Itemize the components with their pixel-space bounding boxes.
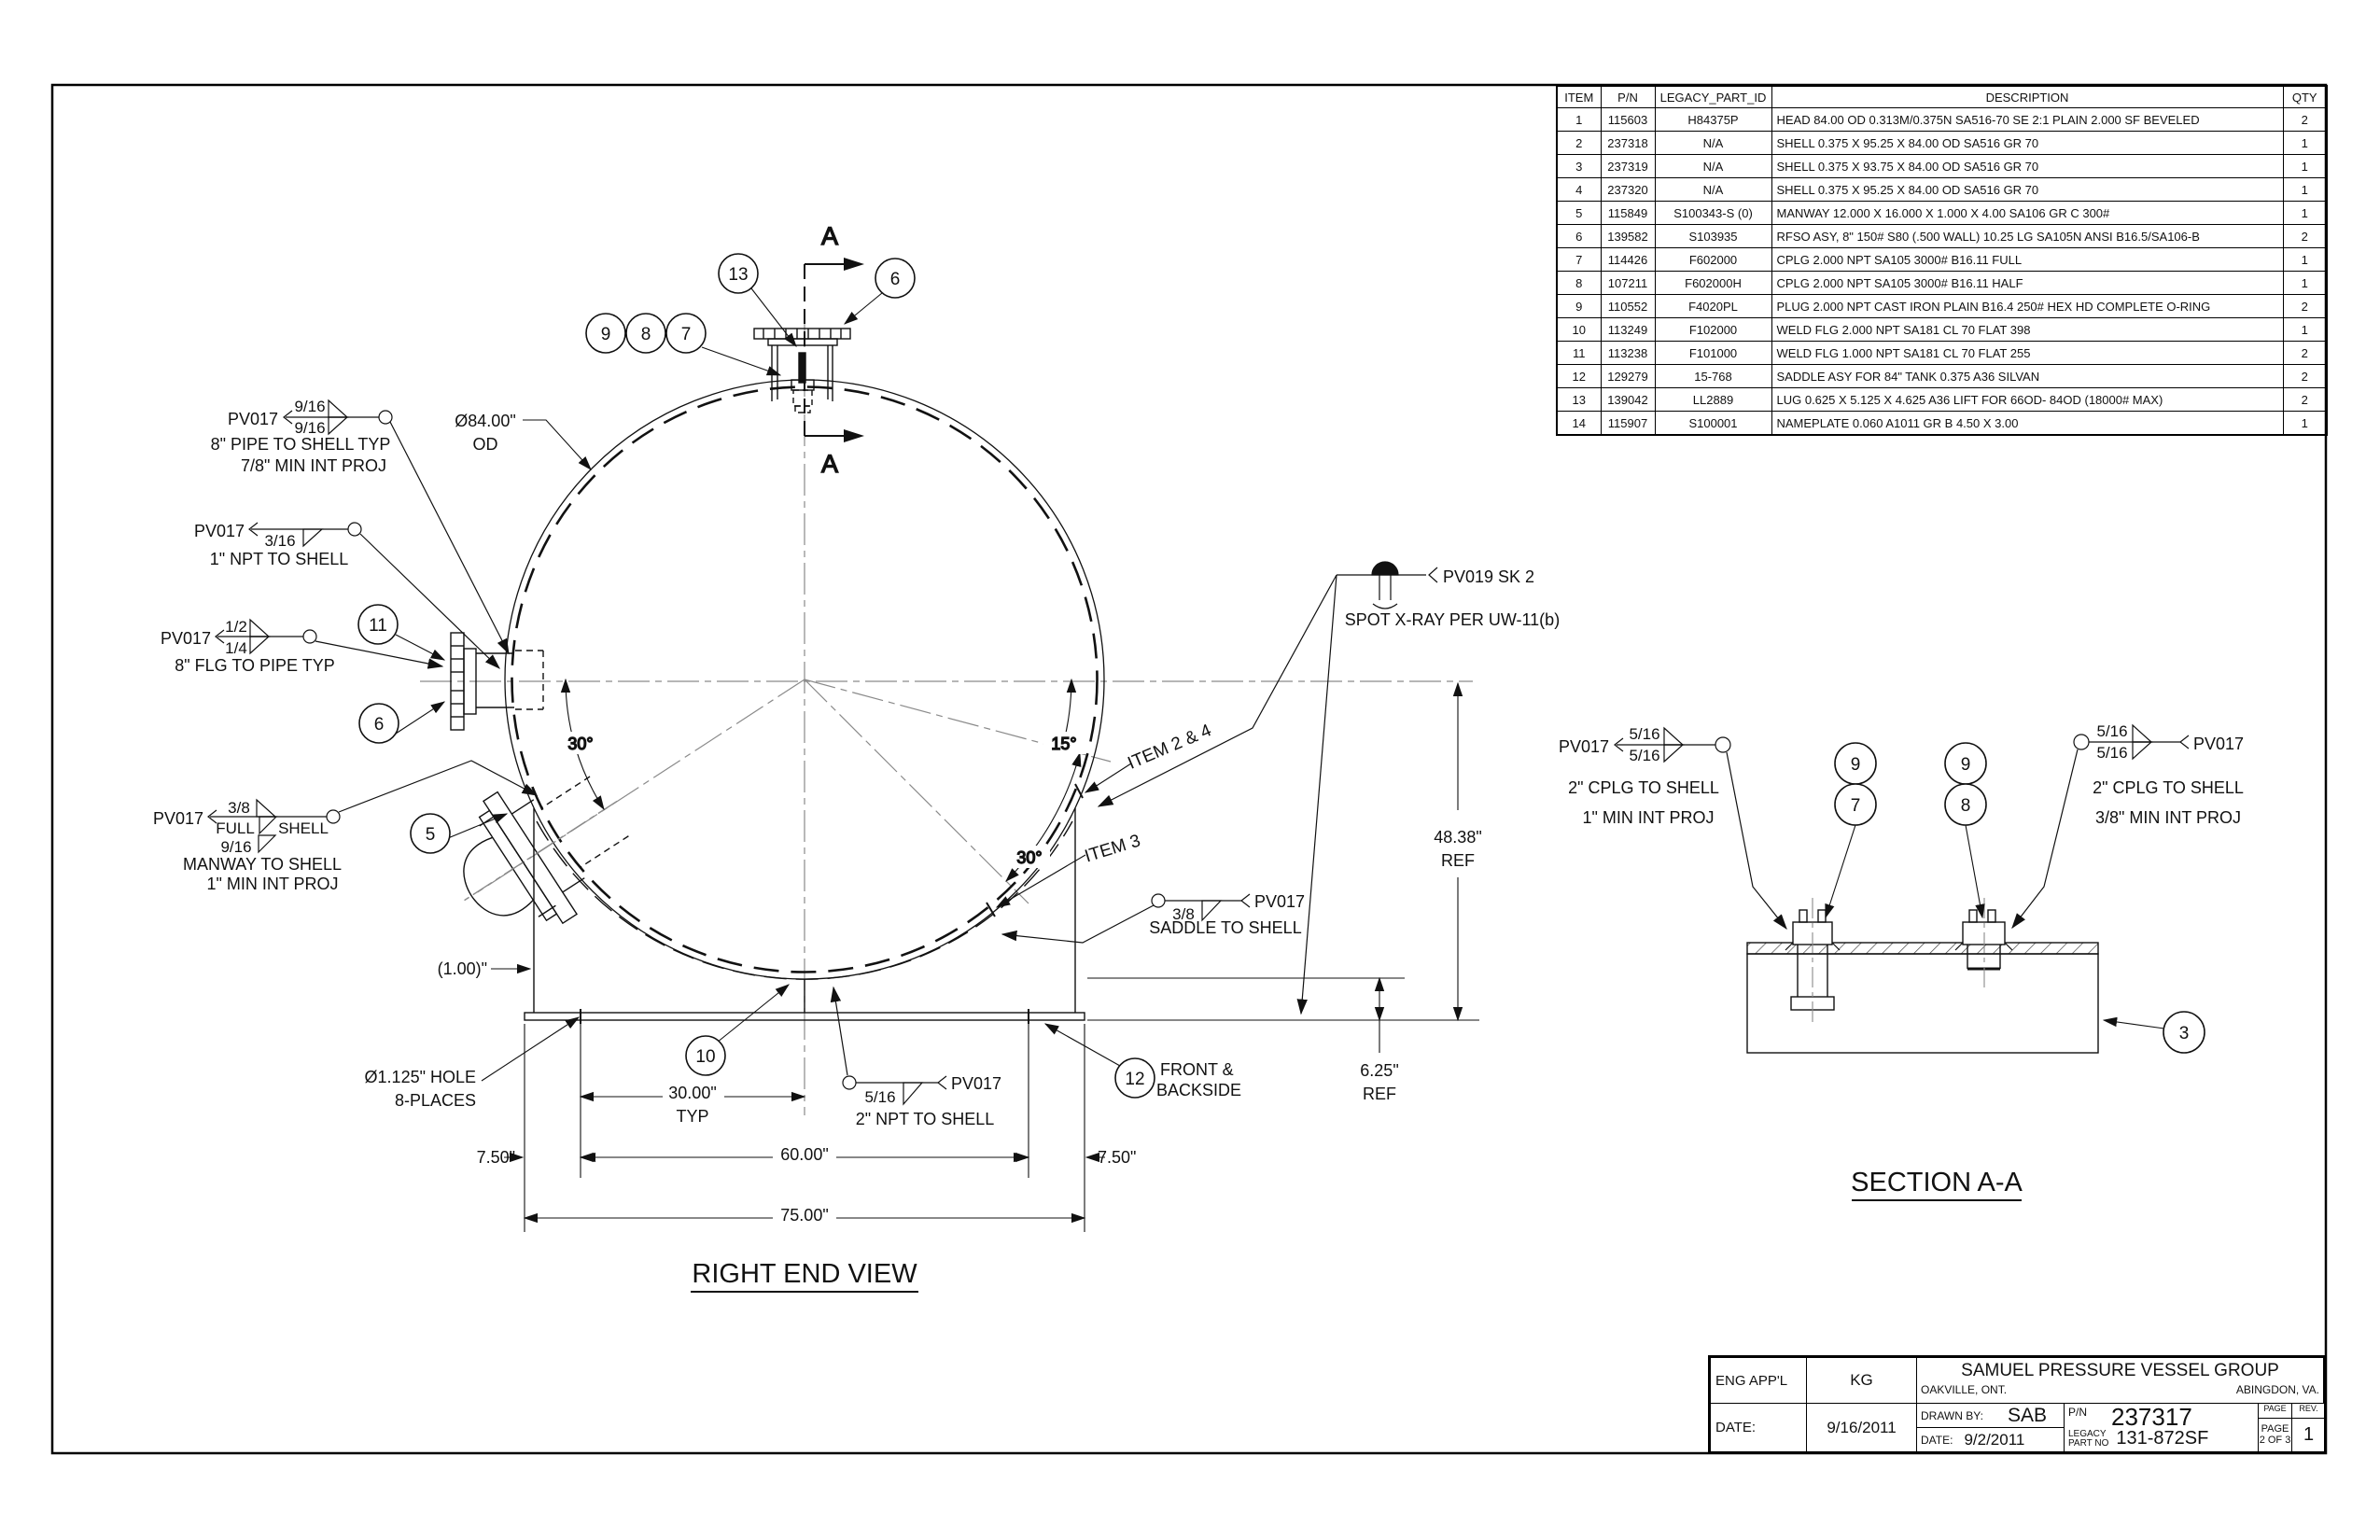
section-letter-bottom: A <box>821 450 838 478</box>
bom-row: 9110552F4020PLPLUG 2.000 NPT CAST IRON P… <box>1557 295 2327 318</box>
angle-dims <box>566 679 1080 881</box>
bom-cell: S103935 <box>1655 225 1771 248</box>
bom-cell: F4020PL <box>1655 295 1771 318</box>
bom-cell: 1 <box>2283 272 2327 295</box>
dim-60: 60.00" <box>780 1145 828 1164</box>
bom-cell: 5 <box>1557 202 1601 225</box>
bom-cell: MANWAY 12.000 X 16.000 X 1.000 X 4.00 SA… <box>1771 202 2283 225</box>
weld-pipe-shell-note-2: 7/8" MIN INT PROJ <box>241 456 386 475</box>
weld-cplg-left-size-top: 5/16 <box>1629 725 1659 743</box>
balloon-9-section-right: 9 <box>1961 755 1971 775</box>
drawn-date-label: DATE: <box>1921 1434 1953 1447</box>
bom-cell: 1 <box>1557 108 1601 132</box>
page-header: PAGE <box>2258 1403 2292 1419</box>
drawing-sheet: A A <box>0 0 2380 1540</box>
bom-cell: WELD FLG 1.000 NPT SA181 CL 70 FLAT 255 <box>1771 342 2283 365</box>
bom-cell: F102000 <box>1655 318 1771 342</box>
balloon-5: 5 <box>426 825 436 845</box>
bom-cell: 115849 <box>1601 202 1655 225</box>
weld-cplg-left-size-bot: 5/16 <box>1629 747 1659 764</box>
bom-cell: 139042 <box>1601 388 1655 412</box>
bom-cell: S100001 <box>1655 412 1771 436</box>
dim-625-ref: REF <box>1363 1085 1396 1103</box>
bom-cell: CPLG 2.000 NPT SA105 3000# B16.11 HALF <box>1771 272 2283 295</box>
bom-cell: 113249 <box>1601 318 1655 342</box>
bom-header-qty: QTY <box>2283 86 2327 108</box>
bom-row: 14115907S100001NAMEPLATE 0.060 A1011 GR … <box>1557 412 2327 436</box>
bom-cell: 10 <box>1557 318 1601 342</box>
bom-row: 11113238F101000WELD FLG 1.000 NPT SA181 … <box>1557 342 2327 365</box>
bom-cell: 1 <box>2283 178 2327 202</box>
bottom-dimensions <box>504 683 1458 1232</box>
bom-cell: 1 <box>2283 412 2327 436</box>
bom-cell: 2 <box>2283 108 2327 132</box>
bom-cell: SHELL 0.375 X 93.75 X 84.00 OD SA516 GR … <box>1771 155 2283 178</box>
bom-row: 1115603H84375PHEAD 84.00 OD 0.313M/0.375… <box>1557 108 2327 132</box>
weld-flg-pipe-tag: PV017 <box>161 629 211 648</box>
hole-label-2: 8-PLACES <box>395 1091 476 1110</box>
item-2-4-label: ITEM 2 & 4 <box>1125 721 1214 774</box>
bom-cell: 114426 <box>1601 248 1655 272</box>
legacy-label: LEGACYPART NO <box>2068 1430 2108 1449</box>
drawn-date-cell: DATE: 9/2/2011 <box>1916 1427 2065 1452</box>
weld-manway-shell: SHELL <box>278 819 329 837</box>
weld-npt2-note: 2" NPT TO SHELL <box>856 1110 994 1128</box>
weld-npt1-size: 3/16 <box>264 532 295 550</box>
bom-cell: SHELL 0.375 X 95.25 X 84.00 OD SA516 GR … <box>1771 178 2283 202</box>
weld-flg-pipe-note: 8" FLG TO PIPE TYP <box>175 656 334 675</box>
item-labels: ITEM 2 & 4 ITEM 3 <box>997 721 1214 907</box>
balloon-8: 8 <box>641 325 651 344</box>
weld-saddle-tag: PV017 <box>1254 892 1305 911</box>
bom-cell: 4 <box>1557 178 1601 202</box>
bom-cell: CPLG 2.000 NPT SA105 3000# B16.11 FULL <box>1771 248 2283 272</box>
bom-header-row: ITEM P/N LEGACY_PART_ID DESCRIPTION QTY <box>1557 86 2327 108</box>
dim-625: 6.25" <box>1360 1061 1398 1080</box>
weld-cplg-right-tag: PV017 <box>2193 735 2244 753</box>
bom-cell: 2 <box>2283 295 2327 318</box>
section-coupling-left <box>1785 898 1840 1027</box>
bom-cell: 2 <box>2283 225 2327 248</box>
bom-cell: 15-768 <box>1655 365 1771 388</box>
weld-npt1-tag: PV017 <box>194 522 245 540</box>
bom-row: 4237320N/ASHELL 0.375 X 95.25 X 84.00 OD… <box>1557 178 2327 202</box>
angle-30-right-label: 30° <box>1016 848 1042 867</box>
bom-table: ITEM P/N LEGACY_PART_ID DESCRIPTION QTY … <box>1556 85 2328 436</box>
balloon-6-left: 6 <box>374 715 385 735</box>
bom-header-pn: P/N <box>1601 86 1655 108</box>
bom-row: 6139582S103935RFSO ASY, 8" 150# S80 (.50… <box>1557 225 2327 248</box>
weld-cplg-left-tag: PV017 <box>1559 737 1609 756</box>
bom-cell: 9 <box>1557 295 1601 318</box>
bom-cell: 12 <box>1557 365 1601 388</box>
section-letter-top: A <box>821 222 838 250</box>
front-label-2: BACKSIDE <box>1156 1081 1241 1099</box>
weld-manway-note-2: 1" MIN INT PROJ <box>206 875 338 893</box>
drawn-by-cell: DRAWN BY: SAB <box>1916 1403 2065 1428</box>
weld-manway-full: FULL <box>216 819 255 837</box>
bom-row: 7114426F602000CPLG 2.000 NPT SA105 3000#… <box>1557 248 2327 272</box>
dim-4838-ref: REF <box>1441 851 1475 870</box>
bom-cell: H84375P <box>1655 108 1771 132</box>
bom-cell: N/A <box>1655 155 1771 178</box>
balloon-7-section: 7 <box>1851 796 1861 816</box>
bom-cell: 8 <box>1557 272 1601 295</box>
bom-cell: 2 <box>1557 132 1601 155</box>
weld-cplg-right-size-top: 5/16 <box>2096 722 2127 740</box>
manway <box>421 740 657 964</box>
balloon-8-section: 8 <box>1961 796 1971 816</box>
weld-cplg-right-size-bot: 5/16 <box>2096 744 2127 762</box>
balloon-3: 3 <box>2179 1024 2190 1043</box>
legacy-value: 131-872SF <box>2116 1428 2208 1449</box>
bom-body: 1115603H84375PHEAD 84.00 OD 0.313M/0.375… <box>1557 108 2327 436</box>
item-3-label: ITEM 3 <box>1083 831 1143 866</box>
balloon-10: 10 <box>695 1047 715 1067</box>
bom-cell: 129279 <box>1601 365 1655 388</box>
weld-npt1-note: 1" NPT TO SHELL <box>210 550 348 568</box>
balloon-9: 9 <box>601 325 611 344</box>
page-value: PAGE2 OF 3 <box>2258 1418 2292 1452</box>
right-end-view-title: RIGHT END VIEW <box>692 1259 917 1289</box>
bom-cell: 1 <box>2283 202 2327 225</box>
bom-cell: 115907 <box>1601 412 1655 436</box>
weld-manway-size-2: 9/16 <box>220 838 251 856</box>
dim-750-right: 7.50" <box>1098 1148 1136 1167</box>
bom-cell: SADDLE ASY FOR 84" TANK 0.375 A36 SILVAN <box>1771 365 2283 388</box>
xray-note: SPOT X-RAY PER UW-11(b) <box>1345 610 1560 629</box>
bom-cell: 3 <box>1557 155 1601 178</box>
part-number-cell: P/N 237317 LEGACYPART NO 131-872SF <box>2064 1403 2259 1452</box>
bom-cell: 115603 <box>1601 108 1655 132</box>
bom-cell: 7 <box>1557 248 1601 272</box>
bom-cell: 1 <box>2283 132 2327 155</box>
od-callout: Ø84.00" OD <box>455 412 591 469</box>
bom-cell: 2 <box>2283 342 2327 365</box>
company-cell: SAMUEL PRESSURE VESSEL GROUP OAKVILLE, O… <box>1916 1357 2324 1404</box>
bom-cell: F602000 <box>1655 248 1771 272</box>
weld-flg-pipe-size-bot: 1/4 <box>225 639 247 657</box>
dim-4838: 48.38" <box>1434 828 1481 847</box>
bom-cell: 139582 <box>1601 225 1655 248</box>
weld-cplg-left-note-2: 1" MIN INT PROJ <box>1582 808 1714 827</box>
weld-npt2-size: 5/16 <box>864 1088 895 1106</box>
front-label-1: FRONT & <box>1160 1060 1234 1079</box>
bom-cell: RFSO ASY, 8" 150# S80 (.500 WALL) 10.25 … <box>1771 225 2283 248</box>
weld-saddle-note: SADDLE TO SHELL <box>1149 918 1301 937</box>
balloon-6-top: 6 <box>890 270 901 289</box>
bom-cell: PLUG 2.000 NPT CAST IRON PLAIN B16.4 250… <box>1771 295 2283 318</box>
bom-cell: F101000 <box>1655 342 1771 365</box>
balloon-11: 11 <box>369 616 387 636</box>
bom-cell: N/A <box>1655 178 1771 202</box>
bom-header-legacy: LEGACY_PART_ID <box>1655 86 1771 108</box>
right-end-view: A A <box>420 222 1479 1115</box>
office-left: OAKVILLE, ONT. <box>1921 1383 2007 1396</box>
balloon-9-section-left: 9 <box>1851 755 1861 775</box>
bom-cell: NAMEPLATE 0.060 A1011 GR B 4.50 X 3.00 <box>1771 412 2283 436</box>
section-view-title: SECTION A-A <box>1851 1168 2023 1197</box>
bom-cell: S100343-S (0) <box>1655 202 1771 225</box>
eng-appl-label: ENG APP'L <box>1710 1357 1807 1404</box>
od-label: Ø84.00" <box>455 412 515 430</box>
xray-callout <box>1099 562 1437 1014</box>
xray-tag: PV019 SK 2 <box>1443 567 1534 586</box>
section-coupling-right <box>1955 898 2012 987</box>
bom-cell: LUG 0.625 X 5.125 X 4.625 A36 LIFT FOR 6… <box>1771 388 2283 412</box>
balloon-12: 12 <box>1125 1070 1144 1089</box>
balloon-13: 13 <box>728 265 748 285</box>
bom-row: 13139042LL2889LUG 0.625 X 5.125 X 4.625 … <box>1557 388 2327 412</box>
weld-npt2 <box>833 987 946 1104</box>
bom-row: 3237319N/ASHELL 0.375 X 93.75 X 84.00 OD… <box>1557 155 2327 178</box>
weld-pipe-shell-tag: PV017 <box>228 410 278 428</box>
bom-row: 5115849S100343-S (0)MANWAY 12.000 X 16.0… <box>1557 202 2327 225</box>
angle-30-left-label: 30° <box>567 735 593 753</box>
bom-cell: HEAD 84.00 OD 0.313M/0.375N SA516-70 SE … <box>1771 108 2283 132</box>
bom-cell: 107211 <box>1601 272 1655 295</box>
bom-header-description: DESCRIPTION <box>1771 86 2283 108</box>
balloon-7: 7 <box>681 325 692 344</box>
bom-cell: 110552 <box>1601 295 1655 318</box>
drawn-by-label: DRAWN BY: <box>1921 1409 1983 1422</box>
bom-cell: 14 <box>1557 412 1601 436</box>
bom-cell: 13 <box>1557 388 1601 412</box>
weld-cplg-right-note-2: 3/8" MIN INT PROJ <box>2095 808 2241 827</box>
bom-cell: F602000H <box>1655 272 1771 295</box>
bom-cell: N/A <box>1655 132 1771 155</box>
date-value: 9/16/2011 <box>1806 1403 1917 1452</box>
bom-cell: 2 <box>2283 388 2327 412</box>
bom-cell: 237320 <box>1601 178 1655 202</box>
title-block: ENG APP'L KG SAMUEL PRESSURE VESSEL GROU… <box>1708 1355 2326 1454</box>
bom-cell: 1 <box>2283 155 2327 178</box>
section-cut-line <box>805 258 864 442</box>
baseplate-thk-callout: (1.00)" <box>438 959 530 978</box>
dim-30-typ: TYP <box>676 1107 708 1126</box>
office-right: ABINGDON, VA. <box>2236 1383 2319 1396</box>
weld-flg-pipe-size-top: 1/2 <box>225 618 247 636</box>
weld-manway-size-1: 3/8 <box>228 799 250 817</box>
bom-cell: 2 <box>2283 365 2327 388</box>
eng-appl-value: KG <box>1806 1357 1917 1404</box>
weld-pipe-shell-size-top: 9/16 <box>294 398 325 415</box>
dim-75: 75.00" <box>780 1206 828 1225</box>
bom-row: 1212927915-768SADDLE ASY FOR 84" TANK 0.… <box>1557 365 2327 388</box>
weld-npt2-tag: PV017 <box>951 1074 1001 1093</box>
baseplate-thk-label: (1.00)" <box>438 959 487 978</box>
date-label: DATE: <box>1710 1403 1807 1452</box>
rev-header: REV. <box>2291 1403 2326 1419</box>
pn-label: P/N <box>2068 1406 2087 1419</box>
bom-row: 10113249F102000WELD FLG 2.000 NPT SA181 … <box>1557 318 2327 342</box>
pn-value: 237317 <box>2111 1406 2192 1428</box>
dim-750-left: 7.50" <box>477 1148 515 1167</box>
weld-pipe-shell-note-1: 8" PIPE TO SHELL TYP <box>211 435 391 454</box>
od-label-2: OD <box>473 435 498 454</box>
bom-cell: 113238 <box>1601 342 1655 365</box>
bom-cell: 1 <box>2283 248 2327 272</box>
drawn-date-value: 9/2/2011 <box>1964 1431 2024 1449</box>
bom-header-item: ITEM <box>1557 86 1601 108</box>
hole-callout: Ø1.125" HOLE 8-PLACES <box>365 1017 579 1110</box>
bom-row: 2237318N/ASHELL 0.375 X 95.25 X 84.00 OD… <box>1557 132 2327 155</box>
angle-15-label: 15° <box>1051 735 1076 753</box>
weld-cplg-right-note-1: 2" CPLG TO SHELL <box>2093 778 2244 797</box>
bom-cell: 237318 <box>1601 132 1655 155</box>
drawn-by-value: SAB <box>2008 1405 2047 1427</box>
hole-label-1: Ø1.125" HOLE <box>365 1068 476 1086</box>
bom-cell: SHELL 0.375 X 95.25 X 84.00 OD SA516 GR … <box>1771 132 2283 155</box>
centerlines <box>420 315 1473 1115</box>
bom-row: 8107211F602000HCPLG 2.000 NPT SA105 3000… <box>1557 272 2327 295</box>
bom-cell: LL2889 <box>1655 388 1771 412</box>
rev-value: 1 <box>2291 1418 2326 1452</box>
company-name: SAMUEL PRESSURE VESSEL GROUP <box>1917 1361 2323 1381</box>
bom-cell: 237319 <box>1601 155 1655 178</box>
bom-cell: WELD FLG 2.000 NPT SA181 CL 70 FLAT 398 <box>1771 318 2283 342</box>
lift-lug <box>799 353 805 383</box>
bom-cell: 1 <box>2283 318 2327 342</box>
dim-30: 30.00" <box>668 1084 716 1102</box>
section-a-a-view <box>1747 898 2098 1053</box>
weld-manway-tag: PV017 <box>153 809 203 828</box>
bom-cell: 6 <box>1557 225 1601 248</box>
weld-manway-note-1: MANWAY TO SHELL <box>183 855 342 874</box>
weld-cplg-left-note-1: 2" CPLG TO SHELL <box>1568 778 1719 797</box>
bom-cell: 11 <box>1557 342 1601 365</box>
